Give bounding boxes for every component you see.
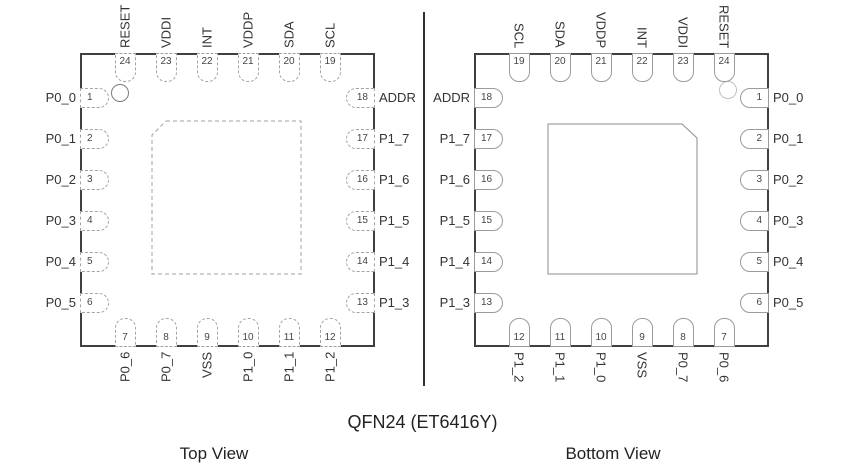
pin-number: 5	[756, 257, 762, 267]
pin-label-VDDI: VDDI	[675, 4, 691, 48]
pin-number: 1	[87, 93, 93, 103]
pin-number: 20	[283, 57, 294, 67]
pin-24: 24	[115, 53, 136, 82]
pin-label-text: P1_2	[512, 352, 527, 382]
pin-label-text: VDDI	[159, 17, 174, 48]
pin-label-P0_0: P0_0	[16, 90, 76, 106]
pin-5: 5	[80, 252, 109, 272]
pin-number: 5	[87, 257, 93, 267]
pin-14: 14	[346, 252, 375, 272]
pin-label-P0_7: P0_7	[675, 352, 691, 396]
pin-label-P0_3: P0_3	[773, 213, 833, 229]
pin-19: 19	[320, 53, 341, 82]
pin-17: 17	[474, 129, 503, 149]
pin-20: 20	[550, 53, 571, 82]
pin-label-text: VDDP	[594, 12, 609, 48]
pin-number: 23	[677, 57, 688, 67]
pin-label-P0_7: P0_7	[158, 352, 174, 396]
pin-20: 20	[279, 53, 300, 82]
pin-label-P1_1: P1_1	[552, 352, 568, 396]
pin-23: 23	[673, 53, 694, 82]
pin-22: 22	[197, 53, 218, 82]
pin-label-P1_1: P1_1	[281, 352, 297, 396]
pin-number: 3	[756, 175, 762, 185]
bottom-view-caption: Bottom View	[538, 444, 688, 464]
pin-number: 11	[555, 333, 565, 343]
pin-label-text: P1_0	[594, 352, 609, 382]
pin-label-VDDI: VDDI	[158, 4, 174, 48]
center-pad	[547, 123, 699, 276]
package-title: QFN24 (ET6416Y)	[0, 412, 845, 433]
pin-label-text: VSS	[200, 352, 215, 378]
pin-number: 19	[513, 57, 524, 67]
pin-number: 4	[87, 216, 93, 226]
pin-11: 11	[279, 318, 300, 347]
pin-number: 18	[481, 93, 492, 103]
pin-16: 16	[346, 170, 375, 190]
pin-label-text: RESET	[118, 5, 133, 48]
pin-number: 17	[357, 134, 368, 144]
pin-2: 2	[740, 129, 769, 149]
pin-label-SCL: SCL	[322, 4, 338, 48]
pin-label-ADDR: ADDR	[410, 90, 470, 106]
pin-label-text: INT	[200, 27, 215, 48]
pin-12: 12	[320, 318, 341, 347]
pin-number: 8	[680, 333, 686, 343]
pin-9: 9	[197, 318, 218, 347]
pin-number: 10	[242, 333, 253, 343]
pin-label-text: P1_1	[553, 352, 568, 382]
pin-number: 2	[87, 134, 93, 144]
pin-label-text: RESET	[717, 5, 732, 48]
pin-label-text: SDA	[553, 21, 568, 48]
pin-number: 17	[481, 134, 492, 144]
pin1-indicator-dot	[111, 84, 129, 102]
pin-6: 6	[80, 293, 109, 313]
pin-label-P1_7: P1_7	[410, 131, 470, 147]
pin-label-SDA: SDA	[552, 4, 568, 48]
pin-number: 11	[284, 333, 294, 343]
pin-13: 13	[474, 293, 503, 313]
pin-label-RESET: RESET	[716, 4, 732, 48]
center-pad	[151, 120, 303, 276]
pin-number: 19	[324, 57, 335, 67]
pin-label-P1_5: P1_5	[410, 213, 470, 229]
pin-15: 15	[346, 211, 375, 231]
pin-label-P0_4: P0_4	[16, 254, 76, 270]
pin-7: 7	[115, 318, 136, 347]
pin-24: 24	[714, 53, 735, 82]
pin-label-text: P1_2	[323, 352, 338, 382]
pin-number: 13	[481, 298, 492, 308]
pin-label-text: VSS	[635, 352, 650, 378]
pin-22: 22	[632, 53, 653, 82]
pin-label-P1_0: P1_0	[240, 352, 256, 396]
pin-label-P0_1: P0_1	[773, 131, 833, 147]
pin-label-P1_0: P1_0	[593, 352, 609, 396]
pin-number: 8	[163, 333, 169, 343]
pin-10: 10	[591, 318, 612, 347]
pin-label-text: P0_6	[118, 352, 133, 382]
pin-label-SCL: SCL	[511, 4, 527, 48]
pin-label-text: P0_6	[717, 352, 732, 382]
pin-label-P1_2: P1_2	[322, 352, 338, 396]
pin-number: 16	[357, 175, 368, 185]
pin-number: 12	[324, 333, 335, 343]
pin-number: 13	[357, 298, 368, 308]
pin-label-P0_1: P0_1	[16, 131, 76, 147]
pin-4: 4	[80, 211, 109, 231]
pin-number: 1	[756, 93, 762, 103]
pin-label-text: P1_1	[282, 352, 297, 382]
pin-21: 21	[591, 53, 612, 82]
pin-label-P0_5: P0_5	[773, 295, 833, 311]
pin-label-P0_5: P0_5	[16, 295, 76, 311]
pin-number: 24	[119, 57, 130, 67]
pin-number: 10	[595, 333, 606, 343]
pin-21: 21	[238, 53, 259, 82]
pin-label-SDA: SDA	[281, 4, 297, 48]
pin-label-P0_2: P0_2	[773, 172, 833, 188]
pin-number: 7	[721, 333, 727, 343]
pin-8: 8	[673, 318, 694, 347]
top-view-diagram: 24RESET23VDDI22INT21VDDP20SDA19SCL1P0_02…	[80, 0, 375, 410]
pin-label-VSS: VSS	[199, 352, 215, 396]
pin-label-text: INT	[635, 27, 650, 48]
pin-number: 16	[481, 175, 492, 185]
pin-1: 1	[80, 88, 109, 108]
pin-14: 14	[474, 252, 503, 272]
view-divider-line	[423, 12, 425, 386]
pin-number: 2	[756, 134, 762, 144]
pin-9: 9	[632, 318, 653, 347]
pin-5: 5	[740, 252, 769, 272]
pin-2: 2	[80, 129, 109, 149]
pin-number: 14	[481, 257, 492, 267]
pin-label-text: VDDP	[241, 12, 256, 48]
pin-number: 20	[554, 57, 565, 67]
pin-number: 22	[201, 57, 212, 67]
pin-number: 15	[481, 216, 492, 226]
pin-label-P0_4: P0_4	[773, 254, 833, 270]
pin-number: 9	[204, 333, 210, 343]
pin-11: 11	[550, 318, 571, 347]
pin-number: 21	[595, 57, 606, 67]
pin-1: 1	[740, 88, 769, 108]
pin-number: 4	[756, 216, 762, 226]
pin-label-text: SDA	[282, 21, 297, 48]
pin-number: 21	[242, 57, 253, 67]
pin-13: 13	[346, 293, 375, 313]
pin-number: 15	[357, 216, 368, 226]
pin-7: 7	[714, 318, 735, 347]
top-view-caption: Top View	[139, 444, 289, 464]
pin-3: 3	[740, 170, 769, 190]
pin-10: 10	[238, 318, 259, 347]
pin-number: 24	[718, 57, 729, 67]
pin-3: 3	[80, 170, 109, 190]
pin-18: 18	[474, 88, 503, 108]
pin-label-P1_2: P1_2	[511, 352, 527, 396]
pin-16: 16	[474, 170, 503, 190]
pin-17: 17	[346, 129, 375, 149]
pin-label-P0_6: P0_6	[117, 352, 133, 396]
pin-number: 22	[636, 57, 647, 67]
pin-number: 14	[357, 257, 368, 267]
pin-number: 12	[513, 333, 524, 343]
pin-number: 3	[87, 175, 93, 185]
pin-label-INT: INT	[199, 4, 215, 48]
bottom-view-diagram: 19SCL20SDA21VDDP22INT23VDDI24RESET18ADDR…	[474, 0, 769, 410]
pin-number: 6	[87, 298, 93, 308]
pin-label-P1_4: P1_4	[410, 254, 470, 270]
pin-label-INT: INT	[634, 4, 650, 48]
pin-label-text: P0_7	[159, 352, 174, 382]
pin-label-VDDP: VDDP	[240, 4, 256, 48]
pin1-indicator-dot	[719, 81, 737, 99]
pin-23: 23	[156, 53, 177, 82]
pin-label-RESET: RESET	[117, 4, 133, 48]
pin-label-P0_3: P0_3	[16, 213, 76, 229]
pin-18: 18	[346, 88, 375, 108]
pin-number: 7	[122, 333, 128, 343]
pin-label-VDDP: VDDP	[593, 4, 609, 48]
pin-6: 6	[740, 293, 769, 313]
pin-label-text: SCL	[512, 23, 527, 48]
pin-19: 19	[509, 53, 530, 82]
pin-label-P0_0: P0_0	[773, 90, 833, 106]
pin-15: 15	[474, 211, 503, 231]
pin-label-P0_6: P0_6	[716, 352, 732, 396]
pin-number: 6	[756, 298, 762, 308]
pin-8: 8	[156, 318, 177, 347]
pin-12: 12	[509, 318, 530, 347]
pin-label-text: P0_7	[676, 352, 691, 382]
pin-label-text: P1_0	[241, 352, 256, 382]
pin-4: 4	[740, 211, 769, 231]
pin-number: 23	[160, 57, 171, 67]
pin-number: 18	[357, 93, 368, 103]
pin-label-VSS: VSS	[634, 352, 650, 396]
pinout-diagram: 24RESET23VDDI22INT21VDDP20SDA19SCL1P0_02…	[0, 0, 845, 467]
pin-label-P1_6: P1_6	[410, 172, 470, 188]
pin-number: 9	[639, 333, 645, 343]
pin-label-text: VDDI	[676, 17, 691, 48]
pin-label-P0_2: P0_2	[16, 172, 76, 188]
pin-label-P1_3: P1_3	[410, 295, 470, 311]
pin-label-text: SCL	[323, 23, 338, 48]
